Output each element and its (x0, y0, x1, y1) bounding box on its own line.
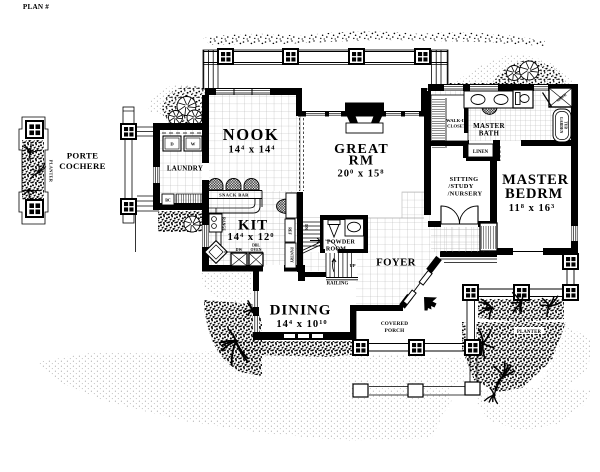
svg-text:DW: DW (236, 248, 243, 252)
svg-text:RM: RM (349, 154, 375, 169)
svg-text:FOYER: FOYER (376, 257, 416, 269)
svg-text:REF: REF (288, 227, 292, 235)
svg-text:RAILING: RAILING (327, 282, 349, 287)
svg-text:SITTING: SITTING (450, 176, 479, 183)
svg-text:144 x 120: 144 x 120 (228, 232, 275, 243)
svg-text:NOOK: NOOK (223, 125, 279, 144)
svg-text:PORCH: PORCH (385, 328, 405, 334)
svg-text:PLANTER: PLANTER (49, 160, 54, 183)
svg-text:LINEN: LINEN (473, 150, 489, 155)
svg-text:CLOSET: CLOSET (447, 124, 466, 129)
svg-text:144 x 144: 144 x 144 (229, 144, 276, 155)
svg-text:BATH: BATH (479, 130, 500, 138)
svg-text:PLANTER: PLANTER (517, 330, 542, 335)
svg-text:OVEN: OVEN (251, 248, 262, 252)
svg-text:PANTRY: PANTRY (290, 247, 294, 263)
svg-text:SNACK BAR: SNACK BAR (219, 193, 249, 198)
svg-text:WALK-IN: WALK-IN (446, 118, 467, 123)
svg-text:TUB: TUB (564, 121, 568, 129)
svg-text:/STUDY: /STUDY (447, 183, 473, 190)
svg-text:GARDEN: GARDEN (559, 117, 563, 134)
svg-text:W: W (191, 142, 196, 147)
svg-text:DINING: DINING (270, 303, 332, 319)
svg-text:COVERED: COVERED (381, 321, 408, 327)
svg-text:COCHERE: COCHERE (59, 161, 106, 171)
svg-text:DBL: DBL (252, 244, 260, 248)
svg-text:POWDER: POWDER (327, 240, 356, 246)
svg-text:BEDRM: BEDRM (505, 186, 563, 202)
svg-text:RANGE: RANGE (222, 217, 226, 231)
svg-text:LAUNDRY: LAUNDRY (167, 165, 203, 173)
svg-text:PORTE: PORTE (67, 151, 99, 161)
svg-text:/NURSERY: /NURSERY (447, 191, 483, 198)
svg-text:200 x 158: 200 x 158 (338, 168, 385, 179)
svg-text:PLAN #: PLAN # (23, 3, 49, 11)
svg-text:UP: UP (349, 263, 355, 268)
svg-text:118 x 163: 118 x 163 (509, 203, 555, 214)
svg-text:ROOM: ROOM (326, 247, 346, 253)
svg-text:BC: BC (165, 198, 171, 203)
svg-text:DN: DN (304, 224, 308, 230)
